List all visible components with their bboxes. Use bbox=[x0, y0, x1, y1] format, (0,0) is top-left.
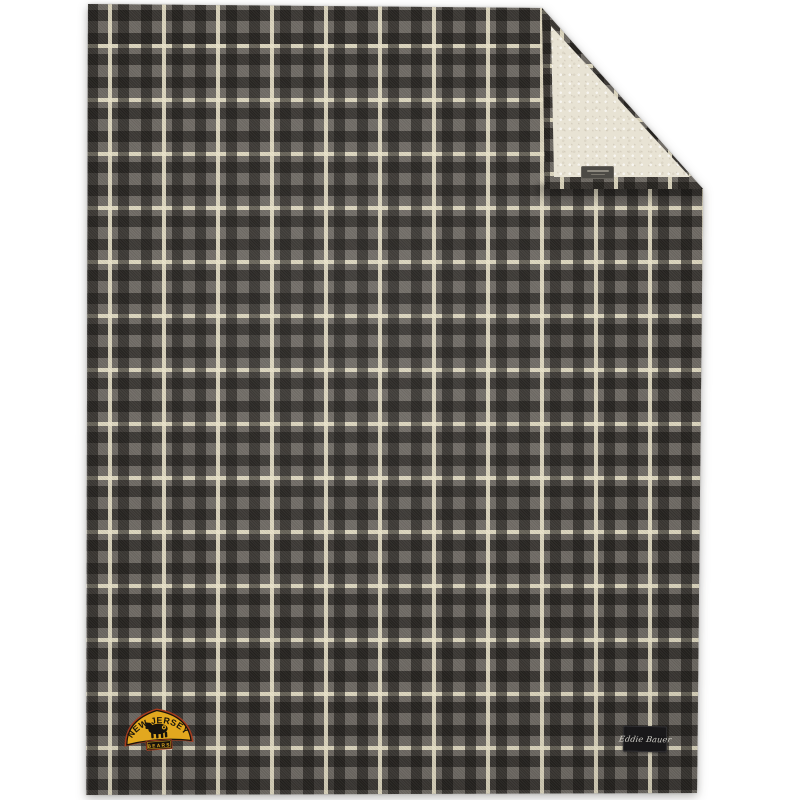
blanket: NEW JERSEY bbox=[0, 0, 800, 800]
eddie-bauer-tag-text: Eddie Bauer bbox=[618, 734, 672, 744]
label-text-line bbox=[591, 174, 605, 175]
fabric-shading bbox=[0, 0, 800, 800]
new-jersey-patch: NEW JERSEY bbox=[119, 701, 196, 756]
left-edge-highlight bbox=[84, 4, 87, 795]
blanket-front-plaid bbox=[0, 0, 800, 800]
patch-banner: BEARS bbox=[146, 739, 172, 750]
label-text-line bbox=[587, 170, 609, 172]
eddie-bauer-tag: Eddie Bauer bbox=[623, 726, 667, 753]
fleece-brand-label bbox=[581, 166, 614, 179]
product-photo: NEW JERSEY bbox=[0, 0, 800, 800]
